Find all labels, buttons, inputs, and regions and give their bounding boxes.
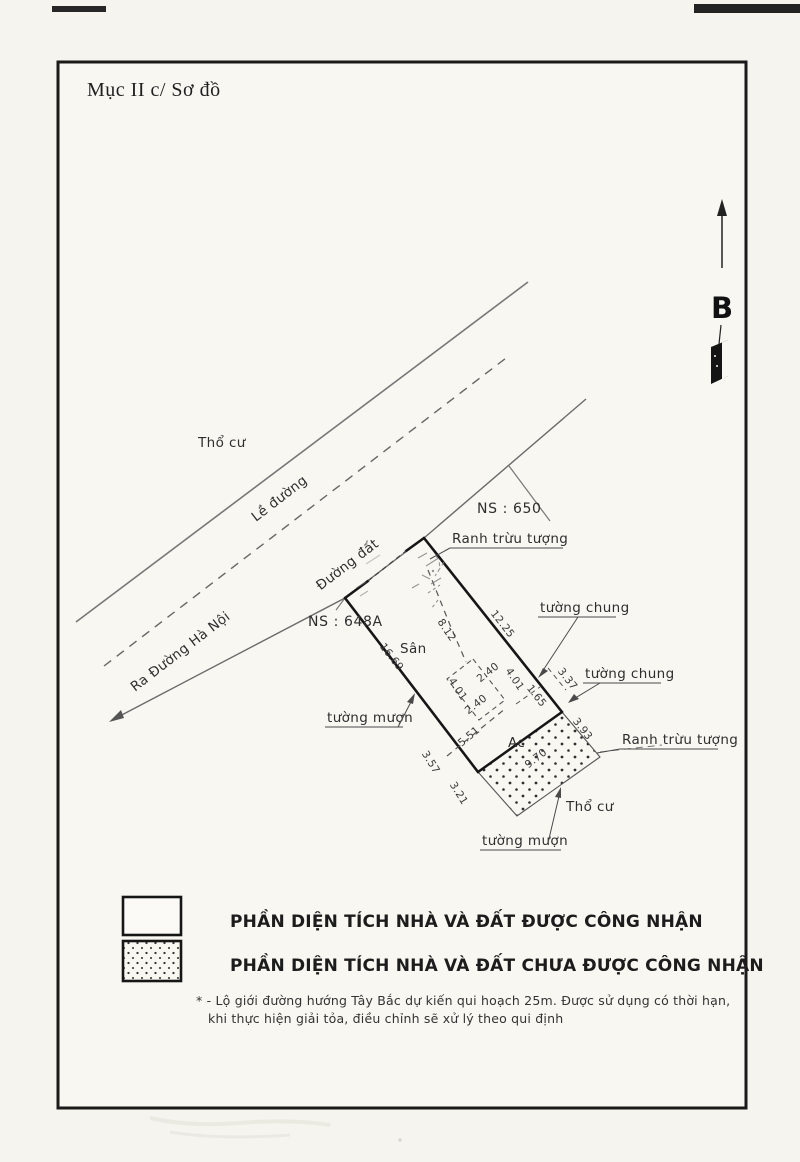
legend-swatch-unrecognized xyxy=(123,941,181,981)
page-title: Mục II c/ Sơ đồ xyxy=(87,79,221,101)
label-ns-650: NS : 650 xyxy=(477,501,542,517)
legend-swatch-recognized xyxy=(123,897,181,935)
label-ranh-truu-tuong-bottom: Ranh trừu tượng xyxy=(622,732,738,748)
label-ns-648a: NS : 648A xyxy=(308,614,383,630)
label-ac: Ac xyxy=(508,735,525,751)
label-tuong-chung-lower: tường chung xyxy=(585,666,675,682)
label-tho-cu-top: Thổ cư xyxy=(197,434,247,451)
flag-speckle xyxy=(714,355,716,357)
label-san: Sân xyxy=(400,641,427,657)
legend-label-unrecognized: PHẦN DIỆN TÍCH NHÀ VÀ ĐẤT CHƯA ĐƯỢC CÔNG… xyxy=(230,952,764,976)
label-ranh-truu-tuong-top: Ranh trừu tượng xyxy=(452,531,568,547)
flag-speckle xyxy=(716,365,718,367)
legend-note-line2: khi thực hiện giải tỏa, điều chỉnh sẽ xử… xyxy=(208,1011,563,1026)
north-label: B xyxy=(711,291,733,325)
flag-highlight xyxy=(722,340,728,379)
site-plan-drawing: Mục II c/ Sơ đồ B xyxy=(0,0,800,1162)
legend-label-recognized: PHẦN DIỆN TÍCH NHÀ VÀ ĐẤT ĐƯỢC CÔNG NHẬN xyxy=(230,908,703,932)
label-tho-cu-bottom: Thổ cư xyxy=(565,798,615,815)
label-tuong-muon-bottom: tường mượn xyxy=(482,833,568,849)
legend-note-line1: * - Lộ giới đường hướng Tây Bắc dự kiến … xyxy=(196,993,730,1008)
scanned-survey-page: Mục II c/ Sơ đồ B xyxy=(0,0,800,1162)
label-tuong-chung-upper: tường chung xyxy=(540,600,630,616)
